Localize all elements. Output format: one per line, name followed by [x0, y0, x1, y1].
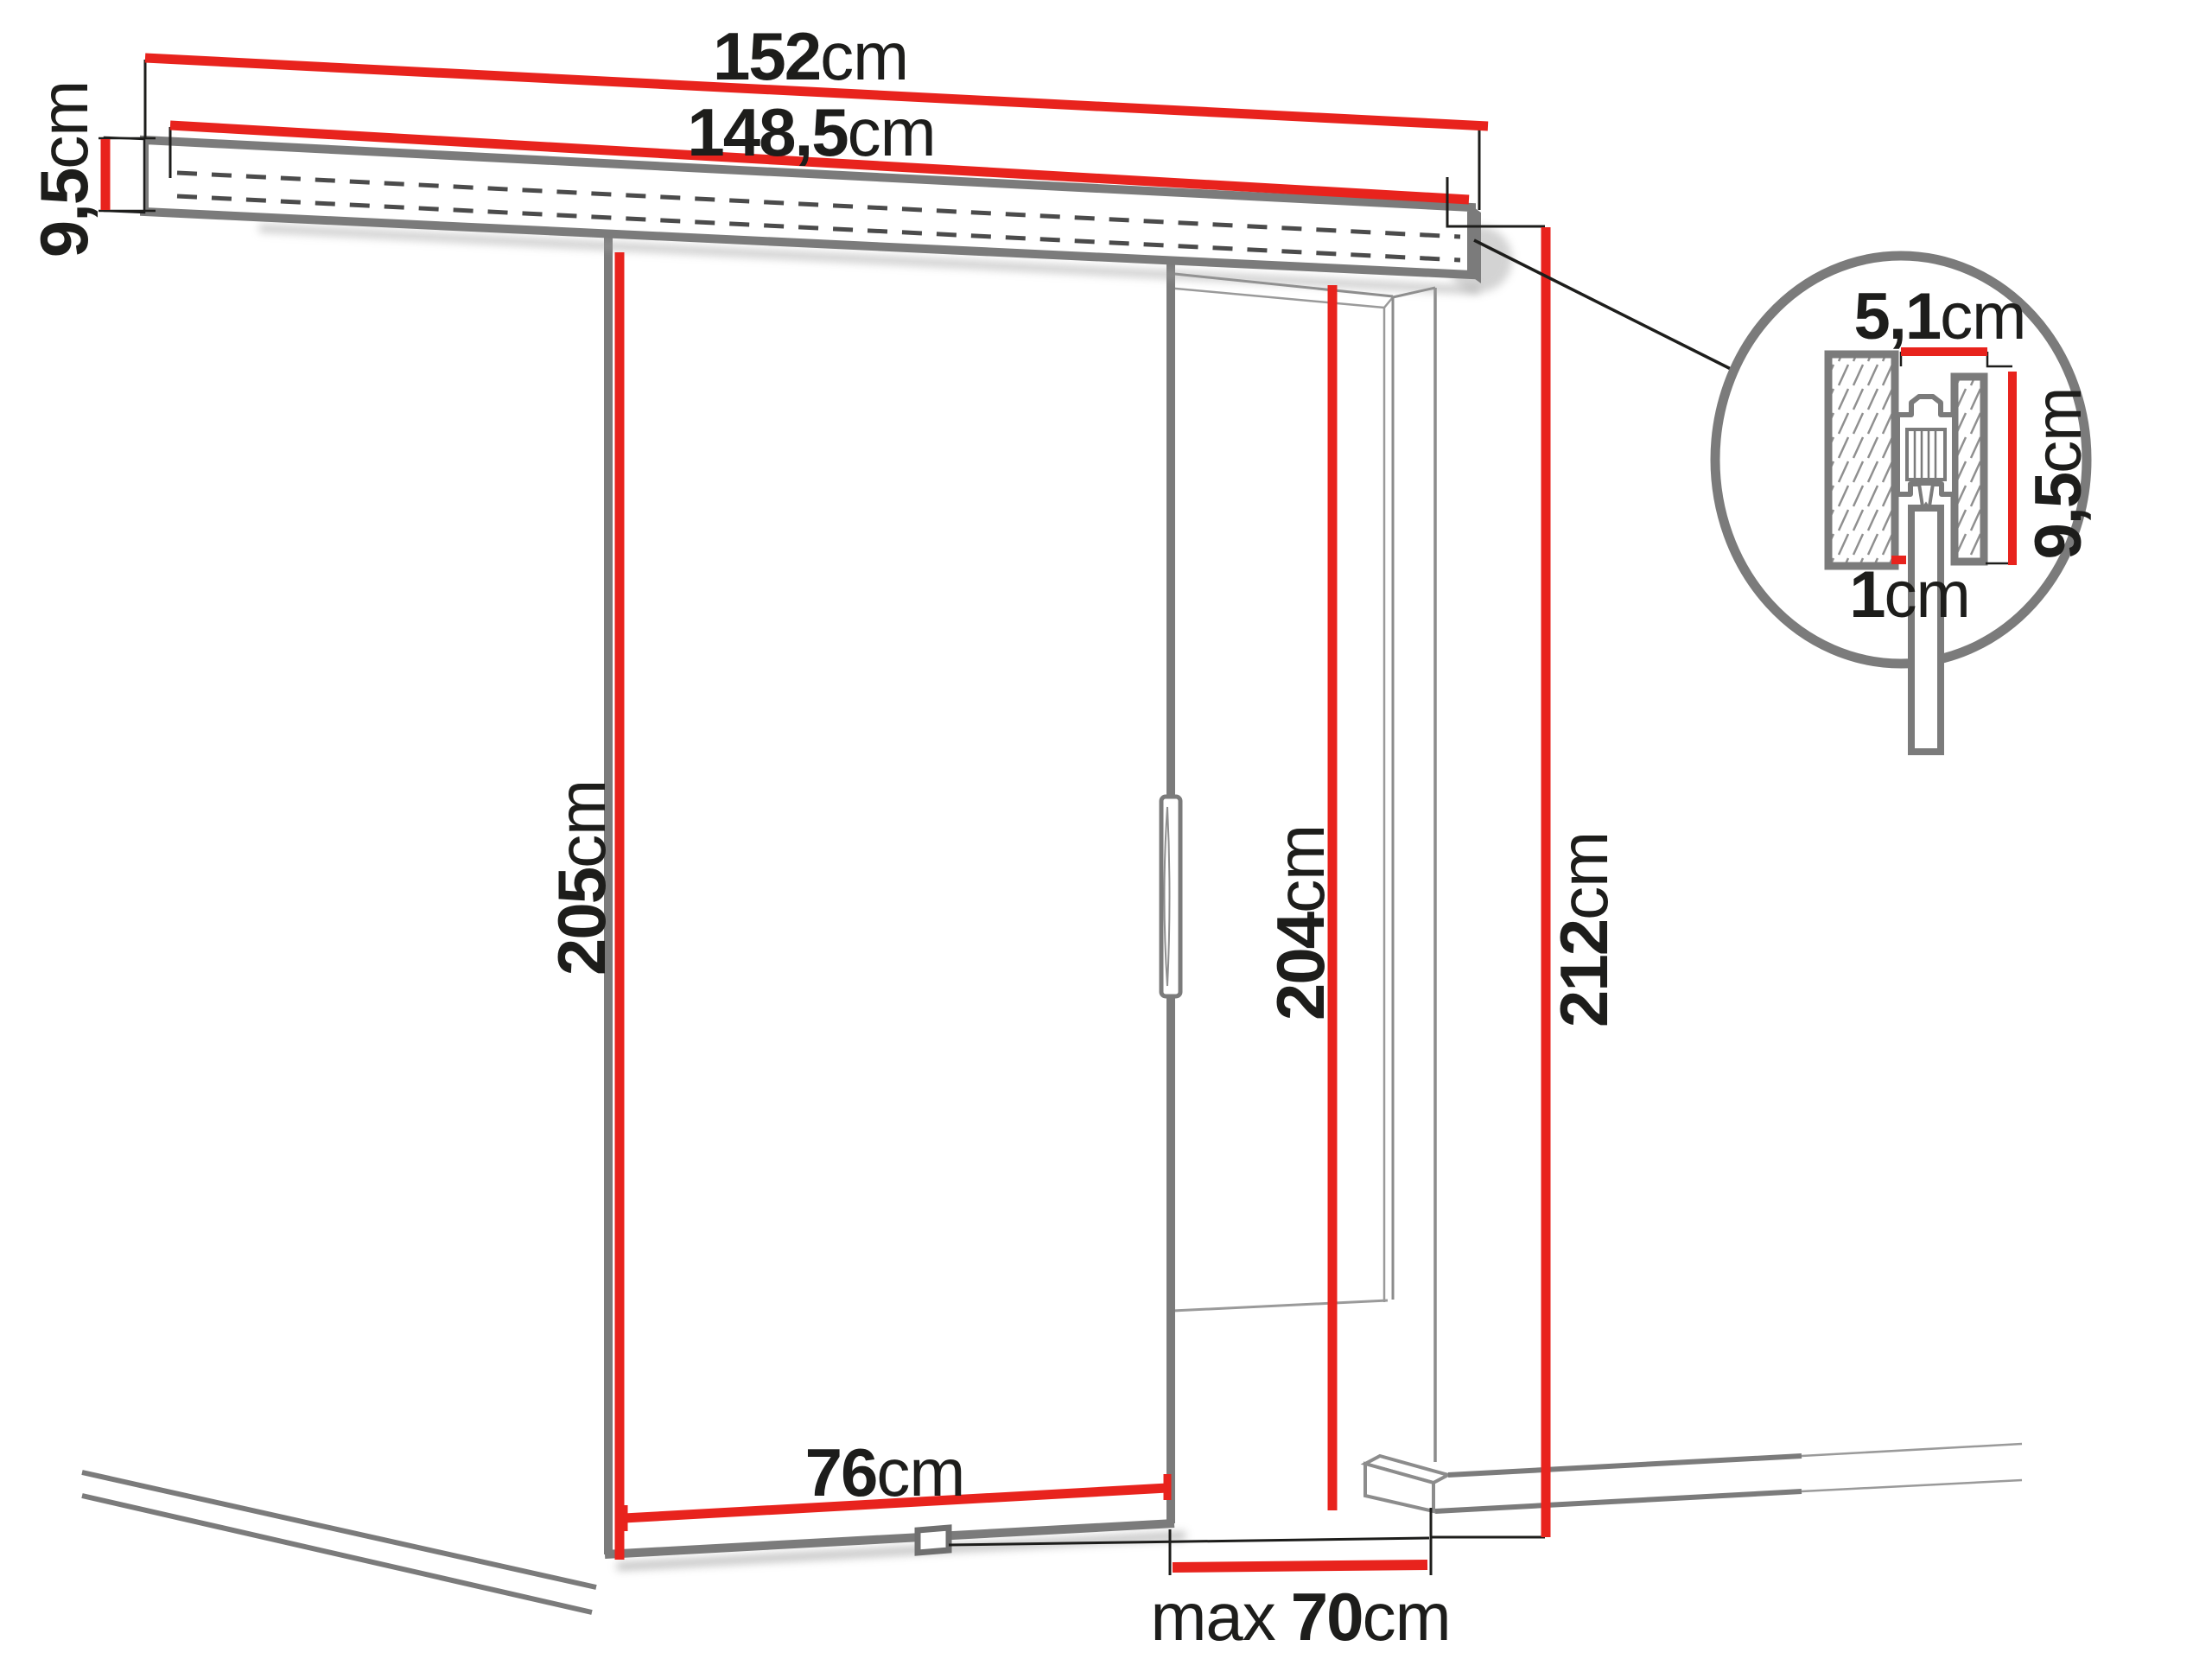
label-205cm: 205cm: [543, 780, 620, 976]
baseboard-run-bottom: [1435, 1491, 1802, 1511]
dimension-opening-height: 204cm: [1262, 285, 1338, 1510]
dimension-overall-height: 212cm: [1432, 177, 1622, 1537]
baseboard-run-top: [1448, 1456, 1802, 1475]
leader-line: [1474, 240, 1739, 373]
door-panel: [605, 232, 1185, 1567]
wall-section-left: [1828, 354, 1895, 566]
detail-dimension-clearance: 1cm: [1849, 558, 1970, 632]
label-148-5cm: 148,5cm: [687, 94, 935, 170]
dimension-line-red: [1173, 1565, 1427, 1567]
baseboard-run-bottom-thin: [1802, 1480, 2022, 1491]
floor-guide: [918, 1528, 949, 1553]
wall-section-right: [1955, 377, 1984, 562]
threshold-line: [1173, 1300, 1388, 1311]
door-face: [608, 232, 1171, 1556]
roller: [1907, 429, 1945, 480]
skirting-top-line: [82, 1472, 596, 1587]
floor-skirting-left: [82, 1472, 596, 1612]
label-152cm: 152cm: [713, 18, 908, 94]
label-212cm: 212cm: [1546, 832, 1622, 1027]
label-5-1cm: 5,1cm: [1854, 280, 2026, 353]
baseboard-run-top-thin: [1802, 1444, 2022, 1456]
opening-soffit-edge: [1166, 288, 1384, 308]
door-handle-groove: [1165, 807, 1170, 986]
diagram-page: 152cm 148,5cm 9,5cm 205cm 76cm: [0, 0, 2212, 1659]
skirting-bottom-line: [82, 1496, 592, 1612]
label-max-70cm: max70cm: [1150, 1579, 1450, 1655]
label-204cm: 204cm: [1262, 825, 1338, 1020]
sliding-door-diagram: 152cm 148,5cm 9,5cm 205cm 76cm: [0, 0, 2212, 1659]
label-9-5cm-left: 9,5cm: [26, 81, 102, 257]
label-9-5cm-detail: 9,5cm: [2022, 388, 2095, 560]
track-left-end-face: [105, 137, 144, 213]
detail-callout: 5,1cm 9,5cm 1cm: [1474, 240, 2095, 752]
baseboard-right: [1365, 1444, 2022, 1511]
label-1cm: 1cm: [1849, 558, 1970, 632]
label-76cm: 76cm: [805, 1434, 965, 1510]
